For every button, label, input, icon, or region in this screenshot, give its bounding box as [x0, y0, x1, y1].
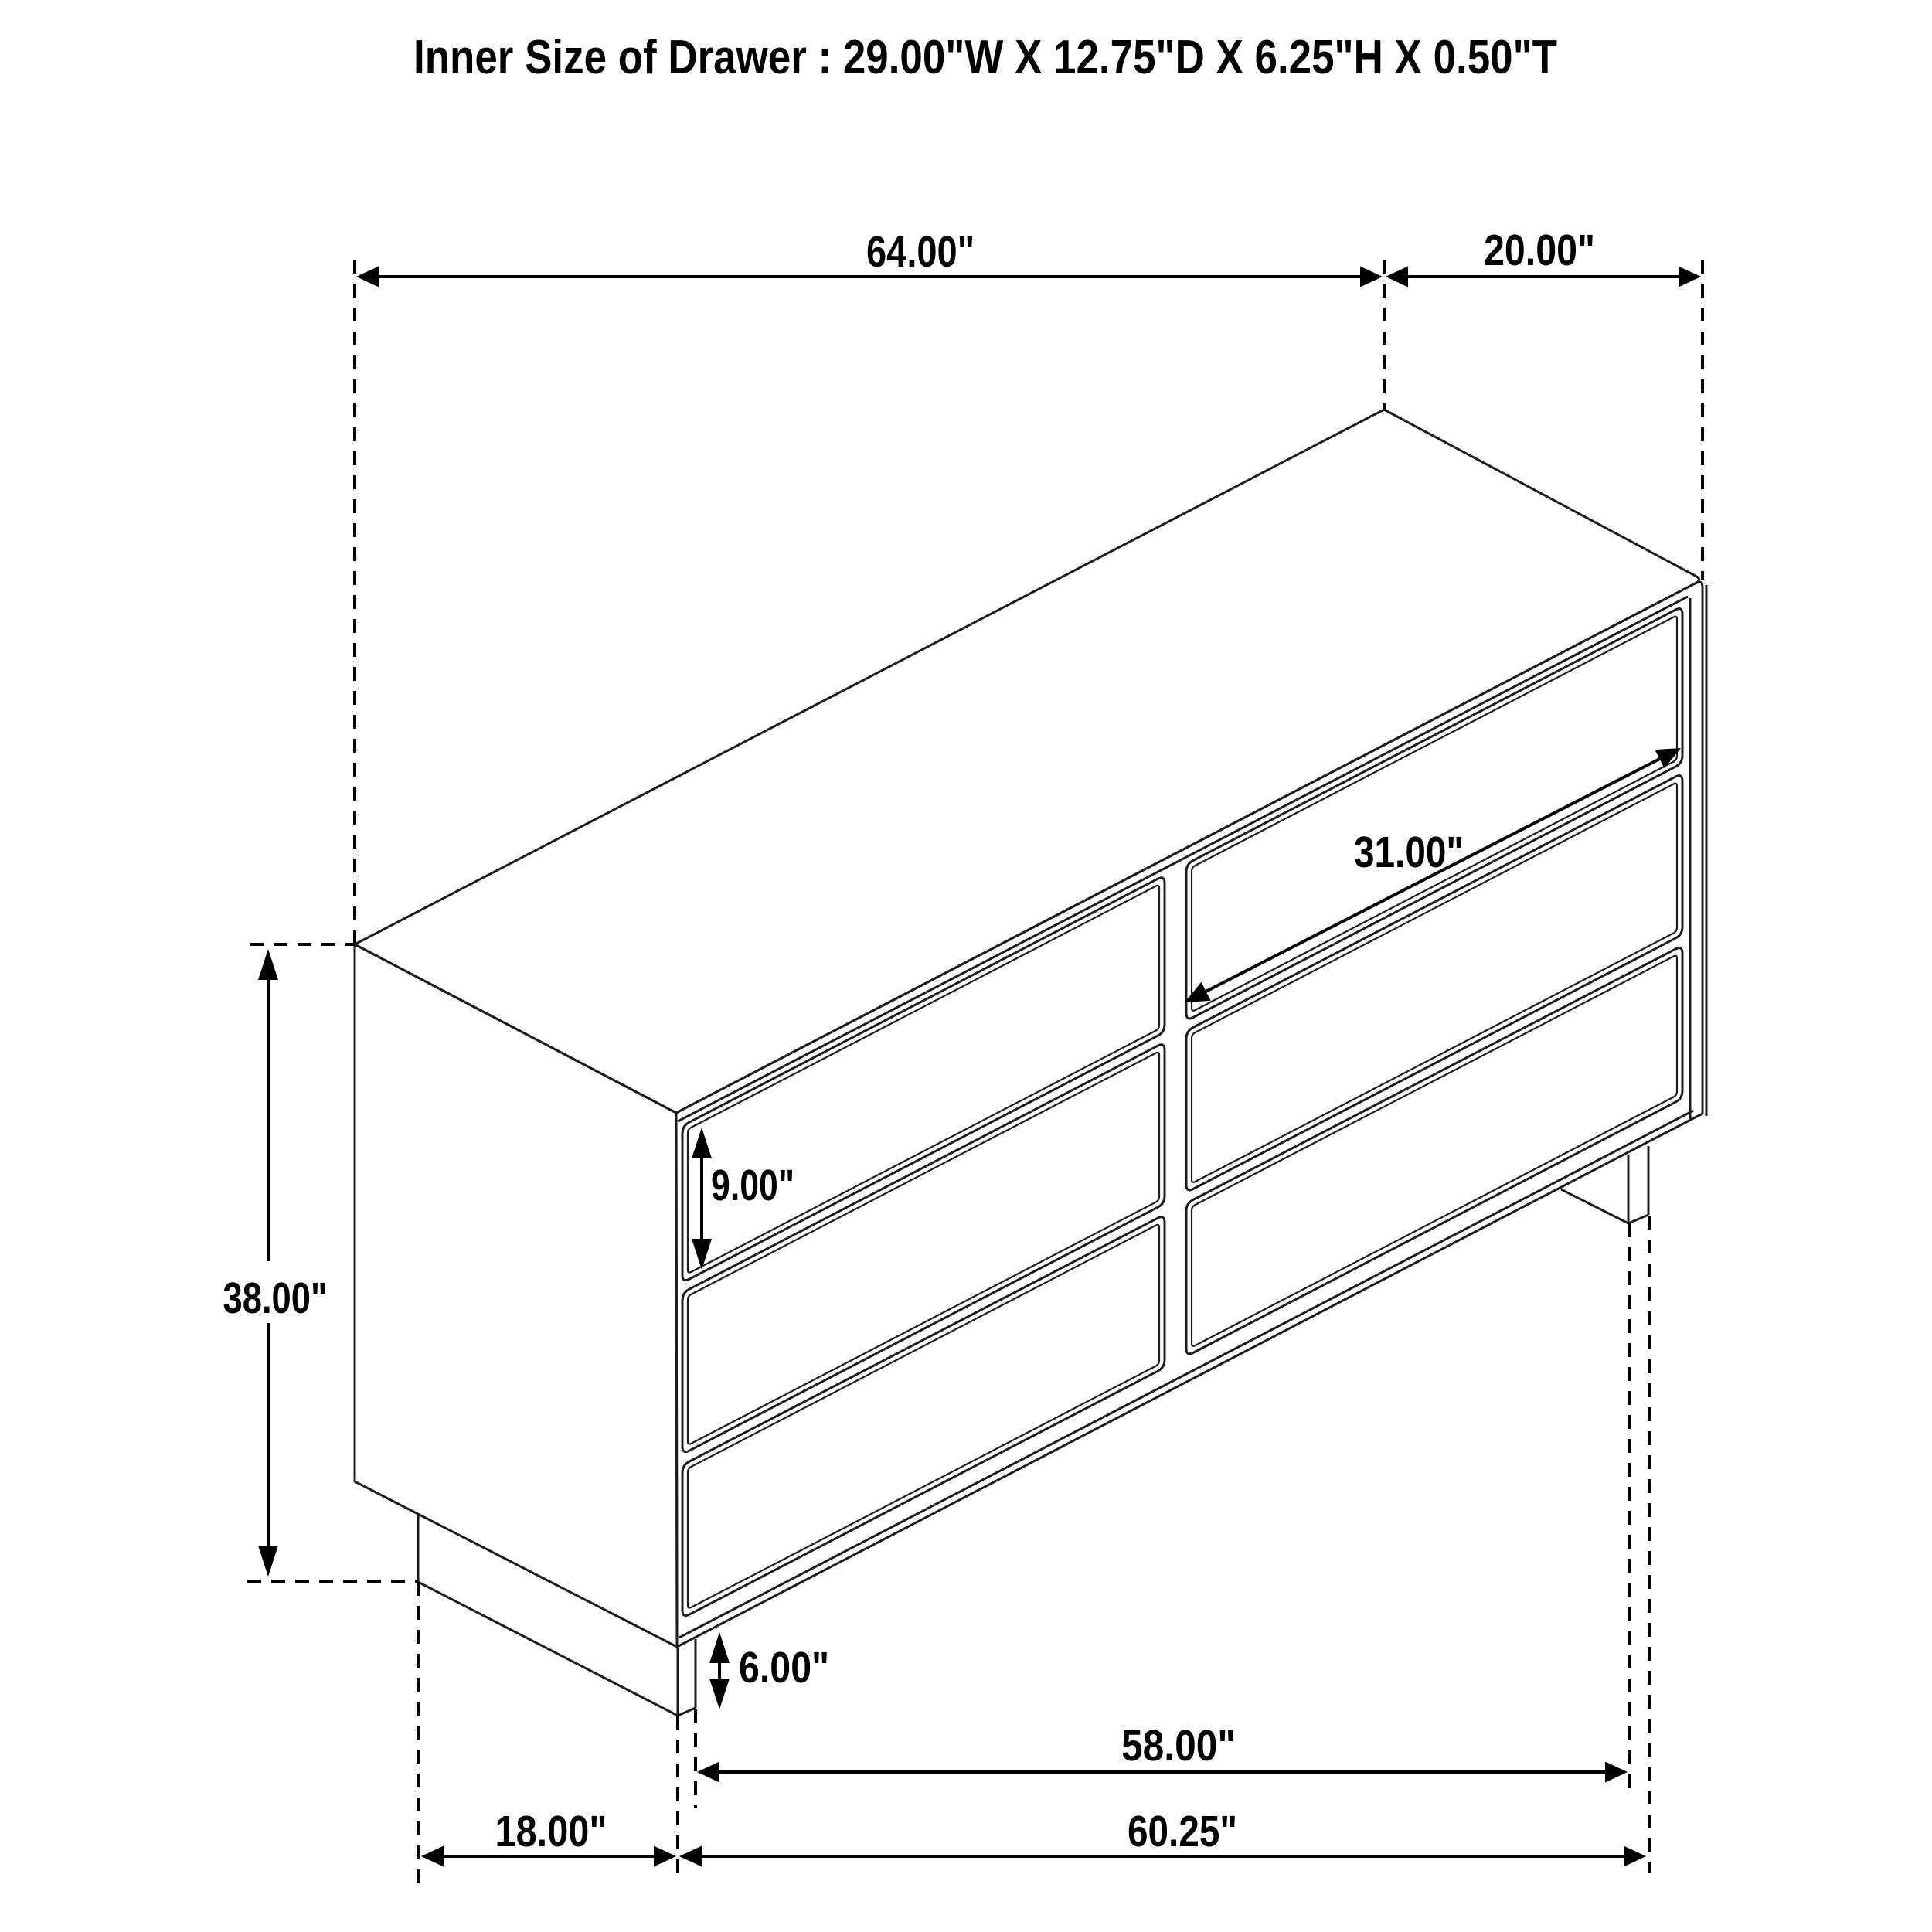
- svg-text:6.00": 6.00": [739, 1643, 829, 1692]
- svg-text:60.25": 60.25": [1128, 1807, 1237, 1856]
- svg-text:38.00": 38.00": [223, 1274, 328, 1323]
- svg-text:20.00": 20.00": [1484, 226, 1595, 275]
- svg-text:18.00": 18.00": [495, 1807, 607, 1856]
- svg-text:58.00": 58.00": [1121, 1721, 1236, 1770]
- svg-text:9.00": 9.00": [711, 1161, 794, 1210]
- svg-text:64.00": 64.00": [866, 227, 975, 277]
- svg-text:31.00": 31.00": [1354, 828, 1464, 877]
- svg-text:Inner Size of Drawer : 29.00"W: Inner Size of Drawer : 29.00"W X 12.75"D…: [413, 31, 1557, 84]
